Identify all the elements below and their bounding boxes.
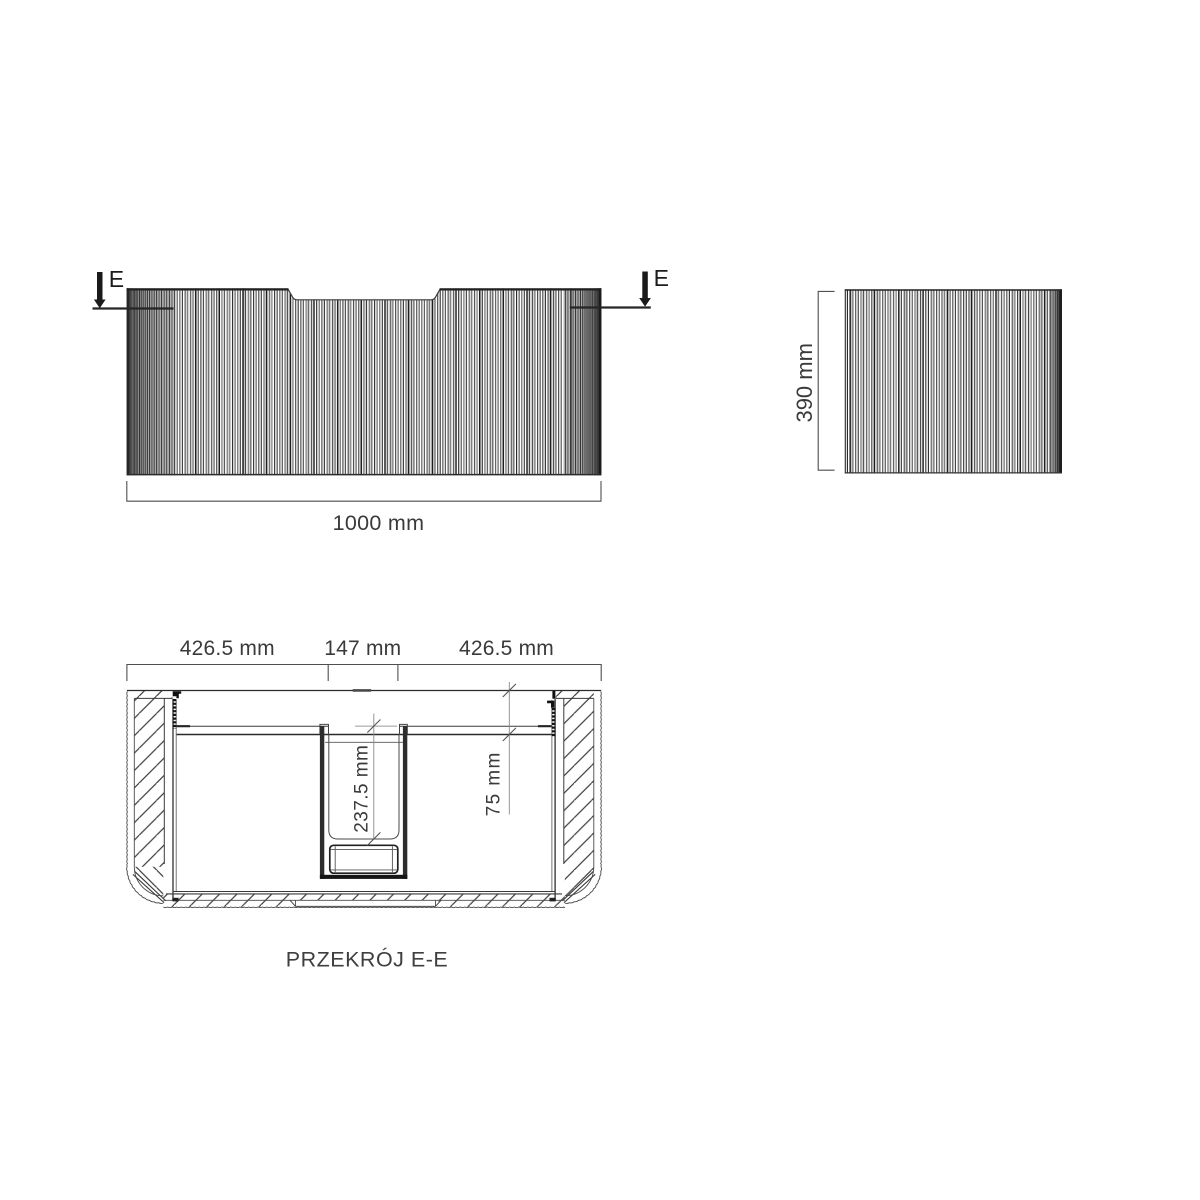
svg-text:426.5 mm: 426.5 mm [180, 637, 275, 660]
svg-text:237.5 mm: 237.5 mm [352, 745, 373, 833]
svg-text:E: E [654, 265, 669, 291]
svg-text:E: E [109, 266, 124, 292]
svg-text:147 mm: 147 mm [324, 637, 401, 660]
svg-text:390 mm: 390 mm [792, 343, 817, 422]
svg-text:PRZEKRÓJ E-E: PRZEKRÓJ E-E [286, 947, 449, 972]
svg-text:75 mm: 75 mm [483, 751, 504, 816]
svg-text:1000 mm: 1000 mm [333, 511, 425, 535]
svg-text:426.5 mm: 426.5 mm [459, 637, 554, 660]
